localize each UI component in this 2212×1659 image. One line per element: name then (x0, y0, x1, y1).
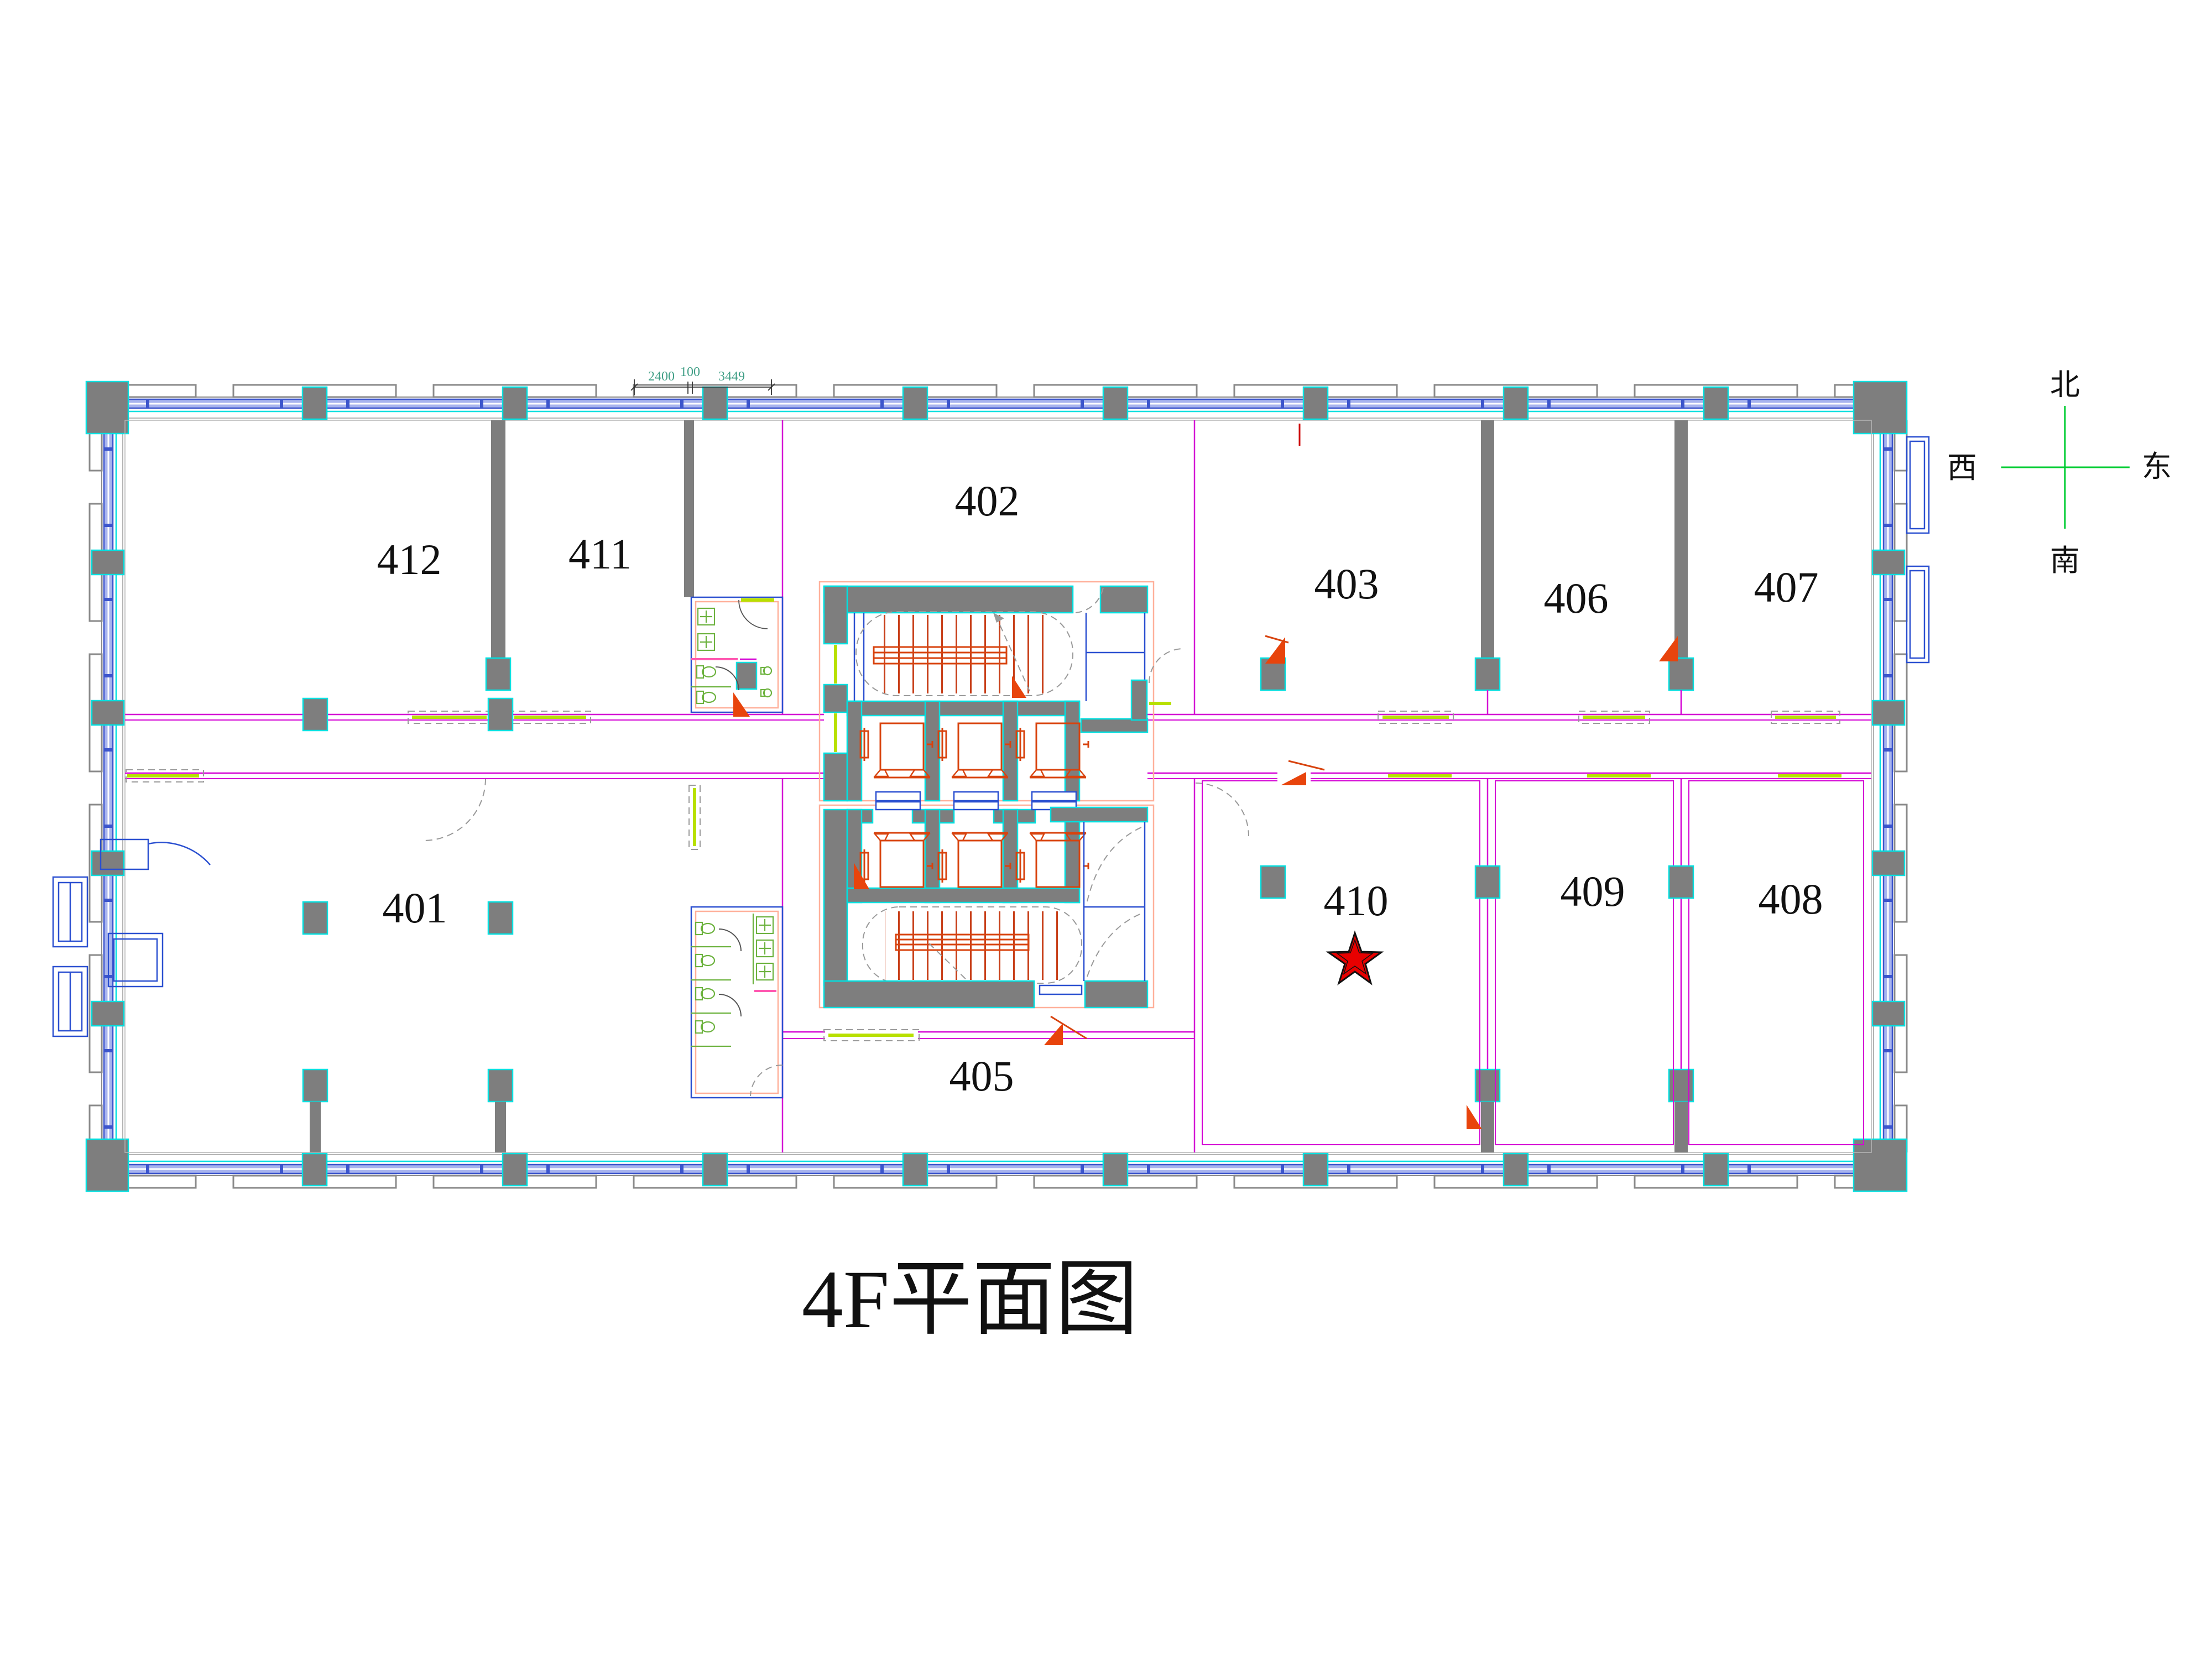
dimension-100: 100 (680, 365, 700, 379)
compass-east-label: 东 (2142, 450, 2172, 483)
room-409-label: 409 (1561, 867, 1625, 915)
compass: 北 南 西 东 (1947, 368, 2172, 577)
page-title: 4F平面图 (802, 1254, 1138, 1345)
room-405-label: 405 (950, 1052, 1014, 1100)
room-403-label: 403 (1314, 560, 1379, 608)
elevator-sill (876, 802, 920, 810)
room-407-label: 407 (1754, 563, 1819, 611)
elevator-sill (954, 792, 998, 801)
core-exit-sill (1040, 985, 1082, 994)
rooms: 412 411 402 403 406 407 401 405 410 409 … (125, 420, 1871, 1152)
corner-column-sw (86, 1139, 128, 1191)
room-409-area (1490, 779, 1679, 1152)
room-412-label: 412 (377, 535, 442, 583)
room-410-label: 410 (1324, 877, 1389, 925)
partition-403-406 (1481, 420, 1494, 658)
west-wall-window-band (88, 420, 125, 1152)
compass-north-label: 北 (2050, 368, 2080, 401)
elevator-sill (954, 802, 998, 810)
core-lower-block (820, 802, 1154, 1045)
partition-412-411 (491, 420, 505, 658)
elevator-car (938, 723, 1010, 778)
elevator-sill (1032, 792, 1076, 801)
toilet-upper (691, 597, 782, 712)
staircase-lower (863, 907, 1082, 983)
staircase-upper (856, 612, 1073, 696)
elevator-car (938, 833, 1010, 887)
room-406-area (1494, 420, 1674, 714)
dimension-2400: 2400 (648, 369, 675, 384)
east-wall-window-band (1871, 420, 1908, 1152)
room-410-area (1197, 779, 1485, 1152)
room-411-label: 411 (568, 530, 632, 578)
east-bay-windows (1907, 437, 1929, 662)
core-upper-block (820, 582, 1183, 801)
elevator-sill (876, 792, 920, 801)
column (737, 662, 757, 689)
room-401-area (125, 779, 780, 1152)
room-408-label: 408 (1759, 875, 1823, 923)
room-401-label: 401 (383, 884, 447, 932)
compass-west-label: 西 (1947, 451, 1977, 484)
compass-south-label: 南 (2050, 544, 2080, 577)
room-406-label: 406 (1544, 574, 1609, 622)
corner-column-nw (86, 382, 128, 434)
elevator-car (860, 723, 932, 778)
north-wall-window-band (125, 384, 1871, 420)
floor-plan-page: 412 411 402 403 406 407 401 405 410 409 … (0, 0, 2212, 1659)
room-408-area (1683, 779, 1871, 1152)
partition-411-wc (684, 420, 694, 597)
floor-plan-canvas: 412 411 402 403 406 407 401 405 410 409 … (0, 0, 2212, 1659)
room-402-label: 402 (955, 477, 1020, 525)
elevator-bank-upper (847, 701, 1088, 801)
elevator-car (860, 833, 932, 887)
partition-406-407 (1674, 420, 1688, 658)
south-wall-window-band (125, 1152, 1871, 1189)
dimension-3449: 3449 (718, 369, 745, 384)
